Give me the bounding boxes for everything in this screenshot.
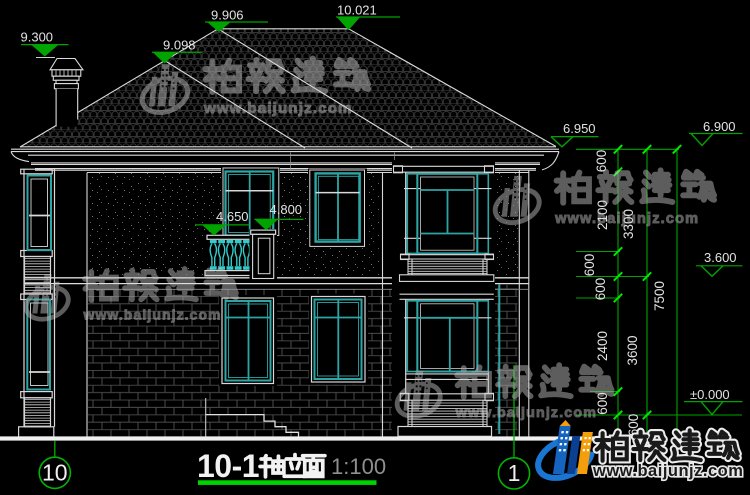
svg-text:3.600: 3.600: [704, 250, 737, 265]
svg-text:9.098: 9.098: [163, 38, 196, 53]
svg-text:9.906: 9.906: [211, 8, 244, 23]
svg-text:7500: 7500: [652, 281, 667, 311]
svg-text:www.baijunjz.com: www.baijunjz.com: [592, 462, 743, 480]
svg-text:10-1: 10-1: [197, 448, 259, 484]
svg-text:4.650: 4.650: [216, 209, 249, 224]
svg-text:3600: 3600: [625, 335, 640, 365]
svg-text:10.021: 10.021: [337, 3, 377, 18]
svg-text:1:100: 1:100: [331, 454, 386, 479]
svg-text:10: 10: [42, 460, 68, 486]
svg-text:±0.000: ±0.000: [690, 387, 730, 402]
svg-text:600: 600: [593, 278, 608, 301]
svg-text:600: 600: [582, 254, 597, 277]
svg-text:1: 1: [508, 460, 521, 486]
svg-text:2400: 2400: [595, 331, 610, 361]
svg-text:6.950: 6.950: [563, 121, 596, 136]
svg-text:600: 600: [594, 150, 609, 173]
svg-text:9.300: 9.300: [21, 30, 54, 45]
svg-text:6.900: 6.900: [703, 119, 736, 134]
svg-text:4.800: 4.800: [270, 202, 303, 217]
